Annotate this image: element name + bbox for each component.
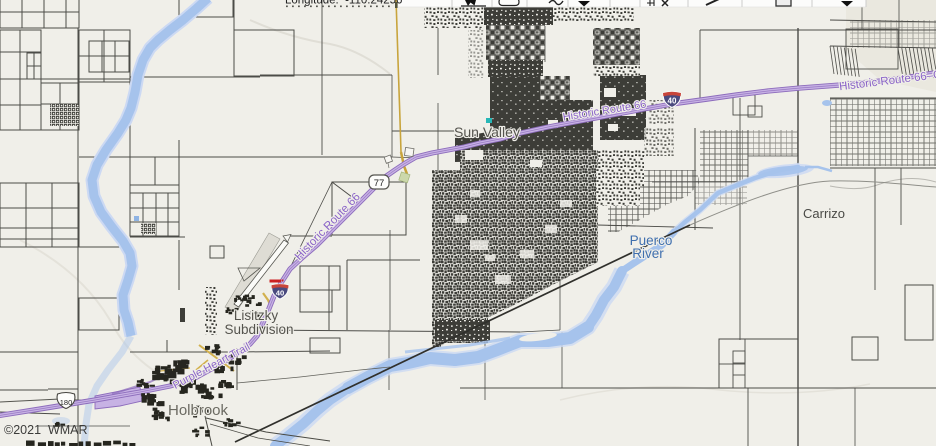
- svg-text:Holbrook: Holbrook: [168, 402, 229, 419]
- svg-text:77: 77: [374, 178, 385, 189]
- svg-text:Longitude: -110.24256: Longitude: -110.24256: [285, 0, 402, 7]
- svg-text:©2021 WMAR: ©2021 WMAR: [4, 423, 88, 437]
- svg-text:180: 180: [60, 398, 73, 407]
- svg-text:Lisitzky: Lisitzky: [234, 308, 279, 323]
- svg-text:40: 40: [276, 288, 284, 297]
- svg-text:Sun Valley: Sun Valley: [454, 124, 520, 140]
- svg-text:Subdivision: Subdivision: [224, 322, 293, 337]
- svg-text:River: River: [632, 246, 664, 261]
- svg-text:Carrizo: Carrizo: [803, 206, 845, 221]
- svg-text:40: 40: [668, 97, 677, 106]
